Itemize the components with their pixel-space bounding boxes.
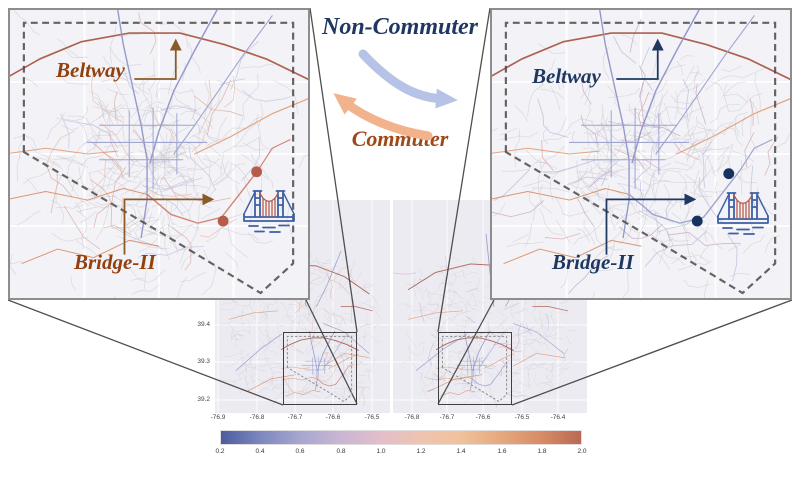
colorbar-tick-label: 0.4 bbox=[245, 448, 275, 455]
colorbar-tick-label: 0.8 bbox=[326, 448, 356, 455]
colorbar-tick-label: 1.0 bbox=[366, 448, 396, 455]
colorbar-tick-label: 0.6 bbox=[285, 448, 315, 455]
colorbar-tick-label: 1.6 bbox=[487, 448, 517, 455]
colorbar-tick-label: 1.4 bbox=[446, 448, 476, 455]
non-commuter-flow-arrow bbox=[363, 54, 442, 99]
colorbar bbox=[220, 430, 582, 445]
exchange-arrows bbox=[0, 0, 800, 477]
figure-canvas: 39.4 39.3 39.2 -76.9 -76.8 -76.7 -76.6 -… bbox=[0, 0, 800, 477]
commuter-flow-arrow bbox=[346, 103, 428, 136]
colorbar-tick-label: 2.0 bbox=[567, 448, 597, 455]
colorbar-tick-label: 0.2 bbox=[205, 448, 235, 455]
colorbar-tick-label: 1.8 bbox=[527, 448, 557, 455]
colorbar-tick-label: 1.2 bbox=[406, 448, 436, 455]
